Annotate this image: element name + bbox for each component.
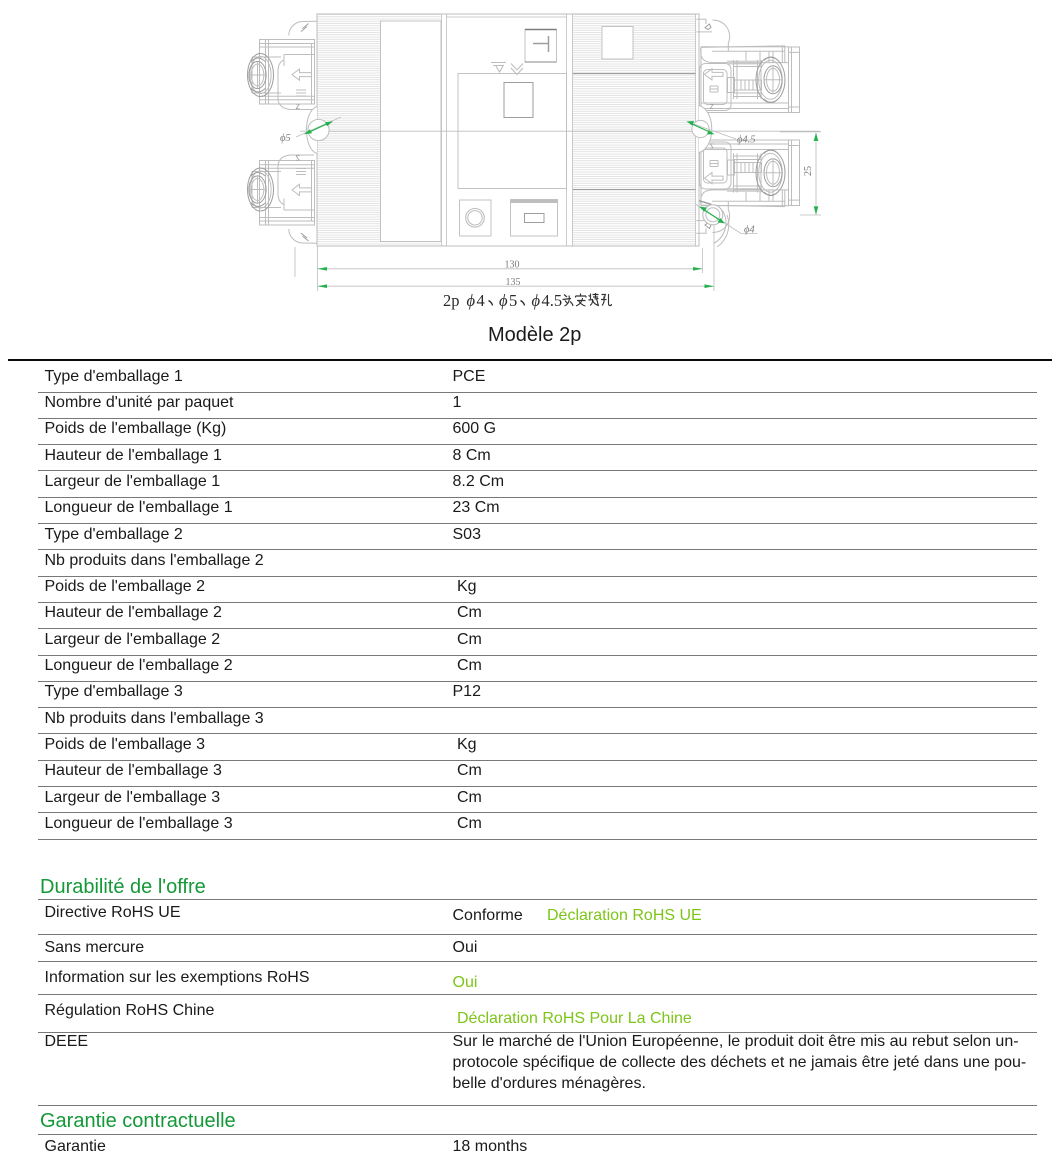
svg-text:130: 130	[505, 260, 520, 271]
svg-text:z: z	[296, 101, 301, 111]
svg-text:135: 135	[506, 277, 521, 288]
svg-text:2pϕ4ϕ5ϕ4.5: 2pϕ4ϕ5ϕ4.5	[443, 291, 562, 310]
svg-text:ϕ4: ϕ4	[744, 225, 755, 236]
svg-text:ϕ4.5: ϕ4.5	[737, 135, 756, 146]
svg-text:ϕ5: ϕ5	[280, 133, 291, 144]
svg-text:z: z	[710, 101, 715, 111]
svg-text:25: 25	[803, 166, 814, 176]
